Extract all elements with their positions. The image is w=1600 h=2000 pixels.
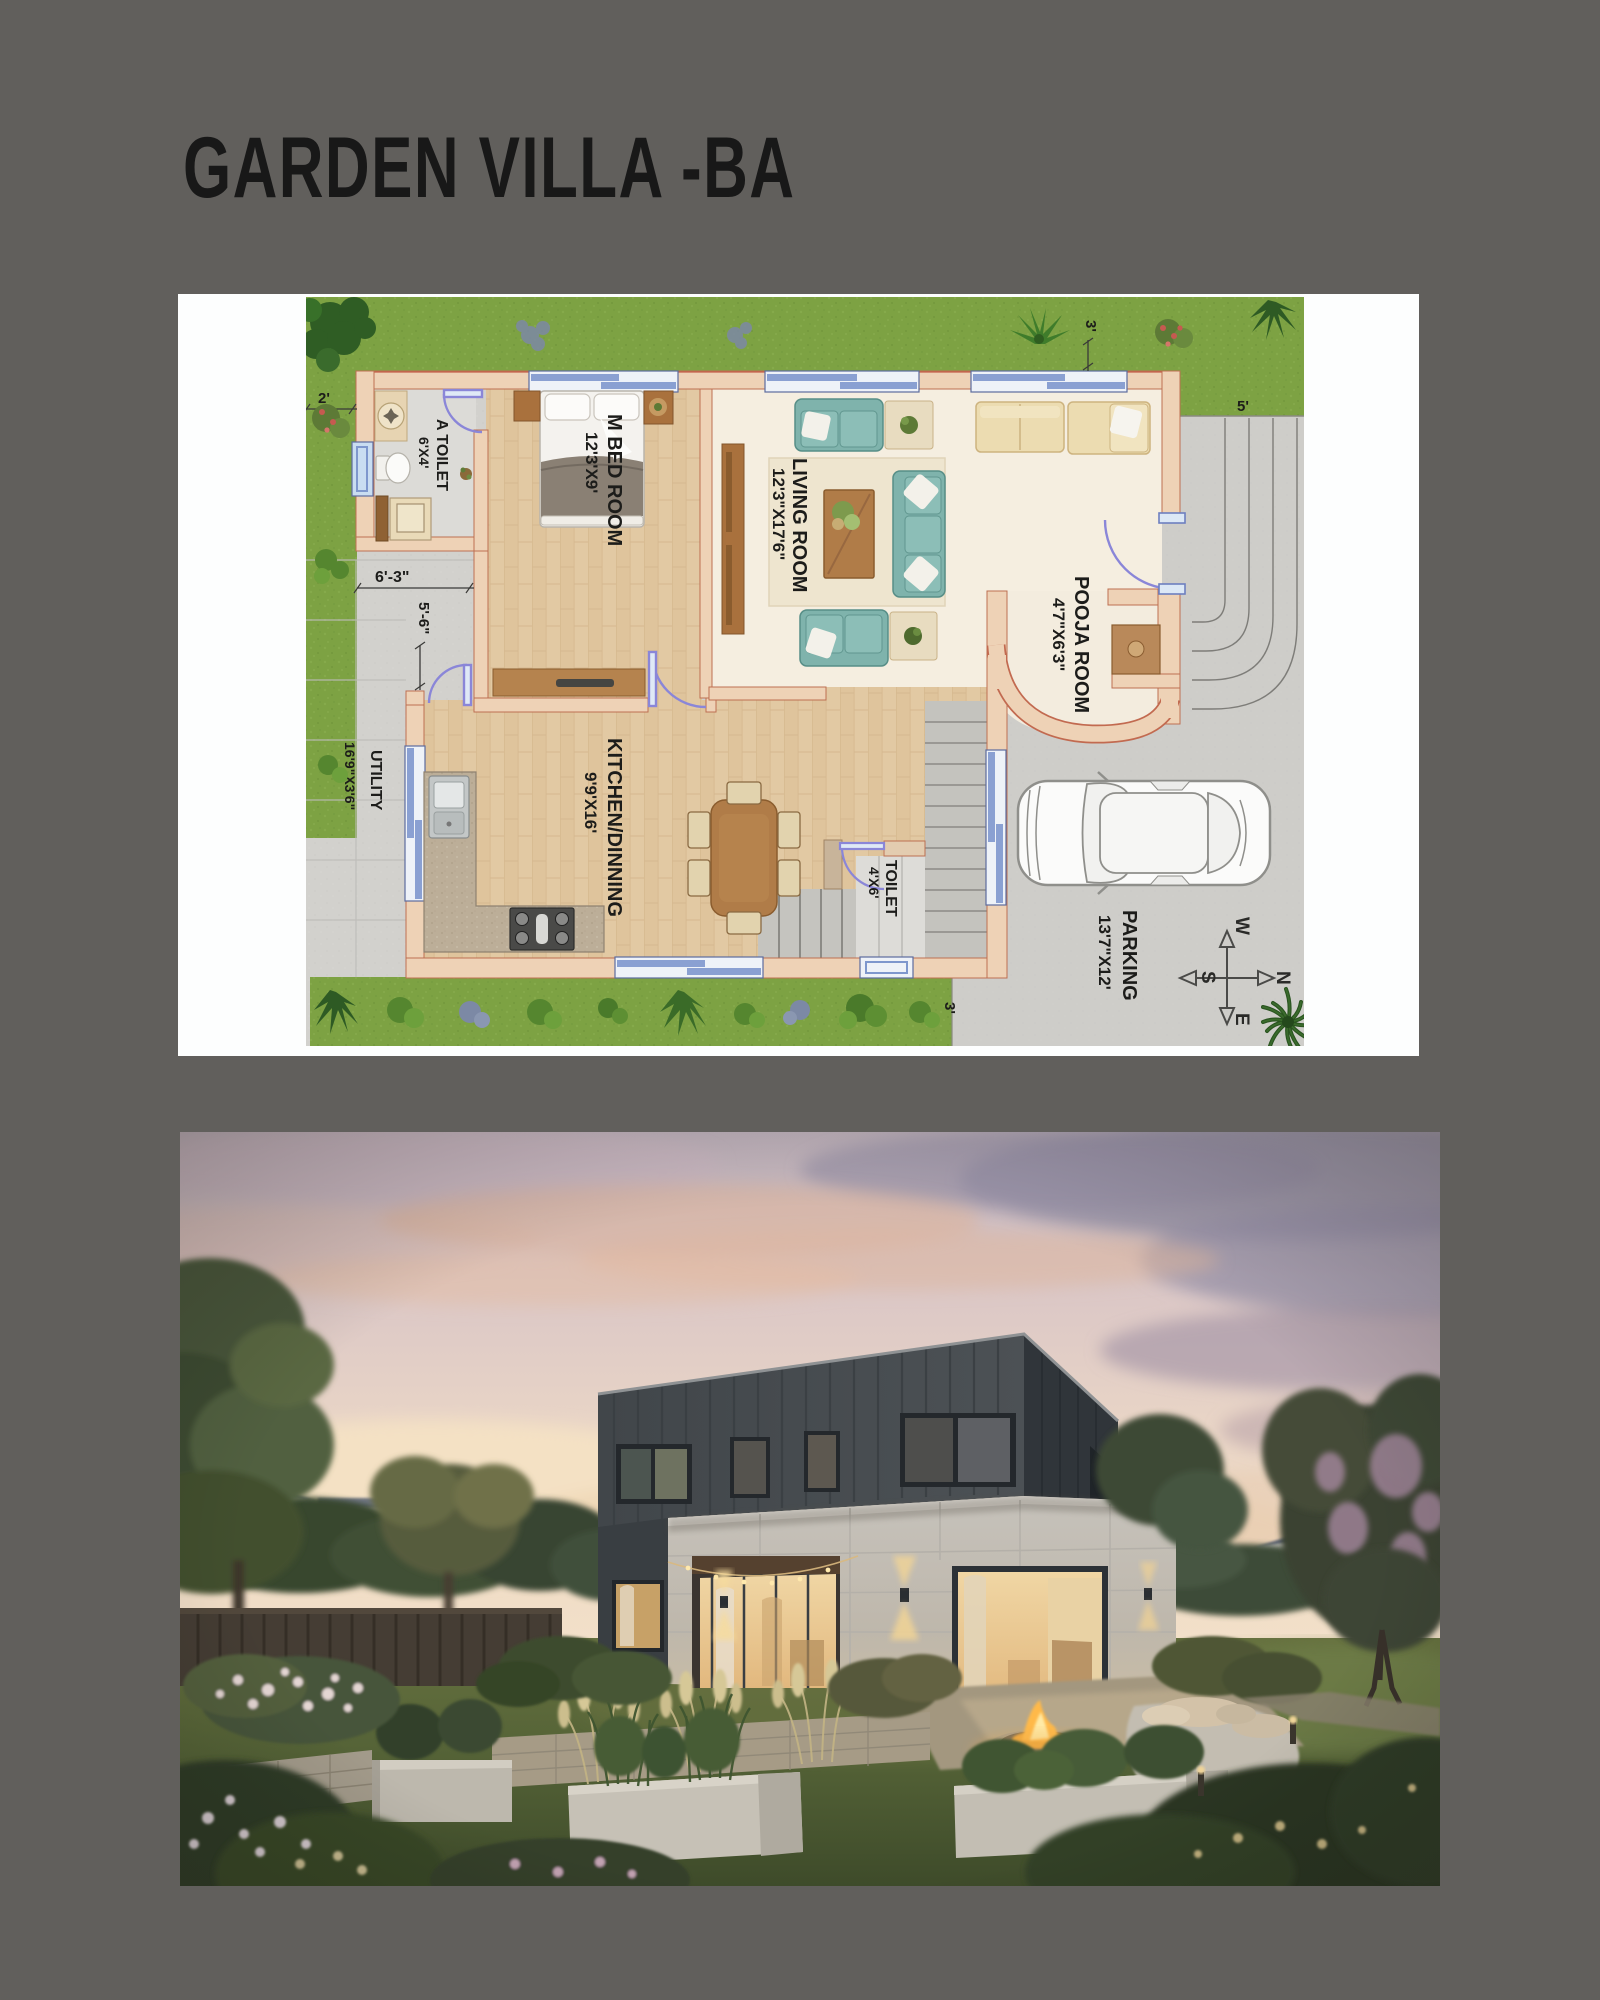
svg-text:UTILITY: UTILITY (367, 750, 384, 811)
svg-text:POOJA ROOM: POOJA ROOM (1070, 576, 1092, 713)
svg-text:3': 3' (941, 1002, 958, 1014)
svg-text:M BED ROOM: M BED ROOM (603, 414, 625, 546)
svg-text:S: S (1197, 971, 1218, 984)
svg-text:TOILET: TOILET (882, 860, 899, 917)
svg-text:N: N (1272, 971, 1293, 985)
svg-text:13'7"X12': 13'7"X12' (1095, 915, 1114, 990)
svg-text:3': 3' (1082, 320, 1099, 332)
svg-text:12'3'X9': 12'3'X9' (582, 432, 601, 493)
svg-text:5'-6": 5'-6" (415, 602, 432, 634)
svg-text:A TOILET: A TOILET (433, 419, 450, 491)
svg-text:W: W (1231, 917, 1252, 935)
svg-text:6'-3": 6'-3" (375, 569, 410, 586)
svg-text:5': 5' (1237, 398, 1249, 415)
svg-text:12'3"X17'6": 12'3"X17'6" (769, 468, 788, 560)
svg-text:4'7"X6'3": 4'7"X6'3" (1049, 598, 1068, 671)
svg-text:LIVING ROOM: LIVING ROOM (788, 458, 810, 592)
svg-text:E: E (1231, 1013, 1252, 1026)
svg-text:9'9'X16': 9'9'X16' (581, 772, 600, 833)
svg-text:KITCHEN/DINNING: KITCHEN/DINNING (603, 738, 625, 917)
svg-text:4'X6': 4'X6' (866, 867, 882, 899)
svg-text:6'X4': 6'X4' (416, 437, 432, 469)
svg-text:PARKING: PARKING (1118, 910, 1140, 1001)
